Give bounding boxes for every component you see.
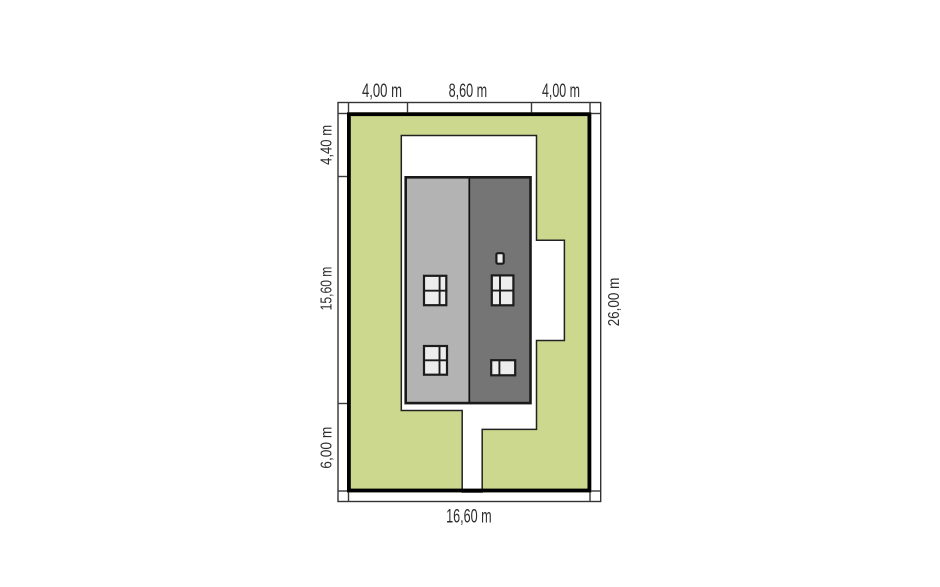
svg-text:8,60 m: 8,60 m (449, 80, 488, 102)
svg-text:4,00 m: 4,00 m (542, 80, 580, 102)
svg-text:16,60 m: 16,60 m (446, 507, 492, 528)
svg-text:15,60 m: 15,60 m (319, 267, 336, 311)
svg-text:26,00 m: 26,00 m (606, 278, 623, 327)
svg-text:4,00 m: 4,00 m (362, 80, 402, 102)
svg-text:6,00 m: 6,00 m (319, 427, 336, 469)
svg-text:4,40 m: 4,40 m (319, 125, 336, 165)
